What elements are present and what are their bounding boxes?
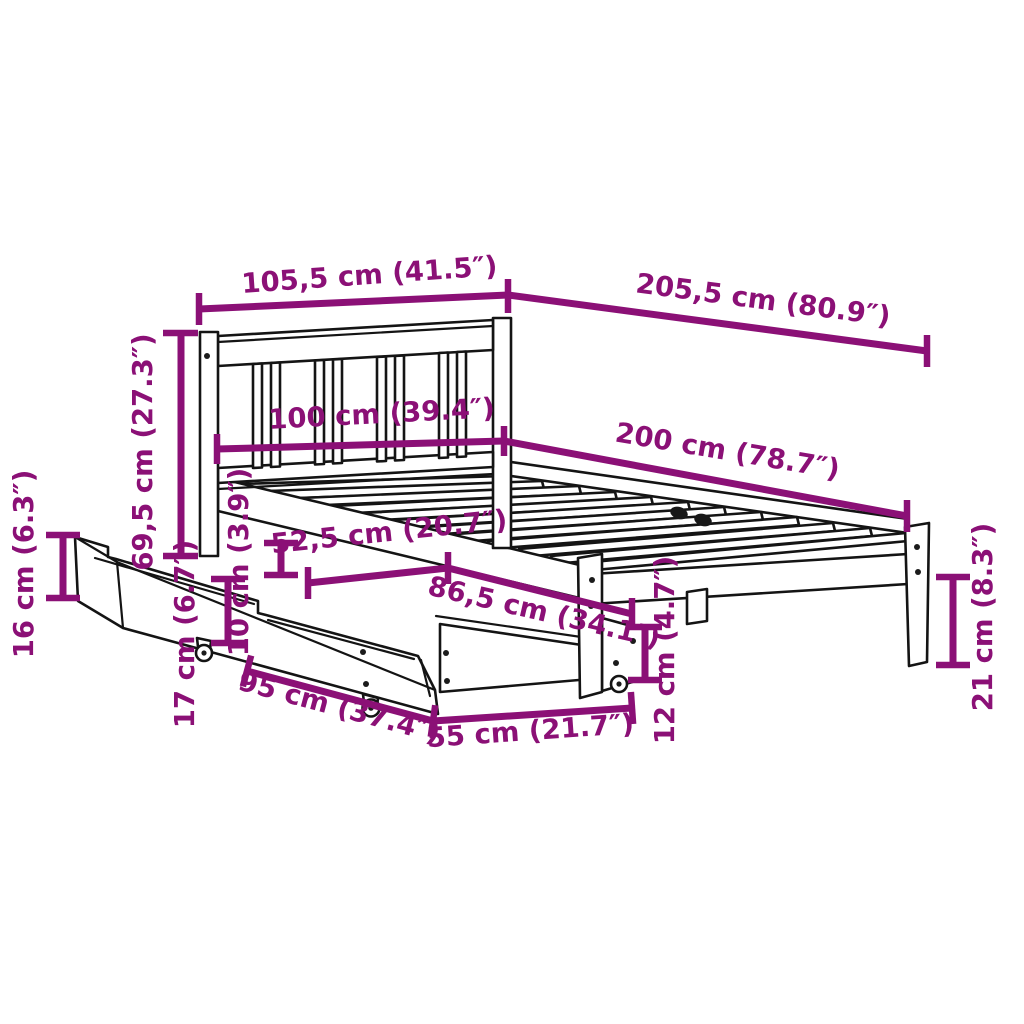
dim-label-drawer-front-height: 16 cm (6.3″) [8, 470, 40, 659]
headboard-top-rail [218, 320, 493, 366]
dim-headboard-width: 105,5 cm (41.5″) [199, 250, 508, 325]
dim-label-total-length: 205,5 cm (80.9″) [634, 267, 892, 332]
headboard-slat [253, 364, 262, 469]
foot-rail-support [687, 589, 707, 624]
screw [204, 353, 210, 359]
dim-drawer-front-height: 16 cm (6.3″) [8, 470, 80, 659]
screw [443, 650, 449, 656]
dim-headboard-height: 69,5 cm (27.3″) [127, 333, 198, 571]
dim-total-length: 205,5 cm (80.9″) [508, 267, 927, 367]
dim-label-drawer-side-height: 17 cm (6.7″) [169, 540, 201, 729]
diagram-canvas: 105,5 cm (41.5″) 205,5 cm (80.9″) 100 cm… [0, 0, 1024, 1024]
dim-leg-height: 21 cm (8.3″) [936, 523, 999, 712]
dim-label-headboard-width: 105,5 cm (41.5″) [240, 250, 498, 300]
dim-label-mattress-length: 200 cm (78.7″) [613, 417, 842, 486]
screw [915, 569, 921, 575]
screw [589, 577, 595, 583]
dim-label-drawer-width: 55 cm (21.7″) [426, 708, 635, 754]
caster-hub [616, 681, 621, 686]
screw [444, 678, 450, 684]
dim-label-headboard-height: 69,5 cm (27.3″) [127, 333, 159, 570]
dim-drawer-width: 55 cm (21.7″) [426, 692, 635, 754]
screw [363, 681, 369, 687]
bed-dimension-diagram: 105,5 cm (41.5″) 205,5 cm (80.9″) 100 cm… [0, 0, 1024, 1024]
dim-label-rear-drawer-height: 12 cm (4.7″) [649, 556, 681, 745]
dim-label-leg-height: 21 cm (8.3″) [967, 523, 999, 712]
caster-hub [201, 650, 206, 655]
screw [914, 544, 920, 550]
screw [613, 660, 619, 666]
screw [360, 649, 366, 655]
